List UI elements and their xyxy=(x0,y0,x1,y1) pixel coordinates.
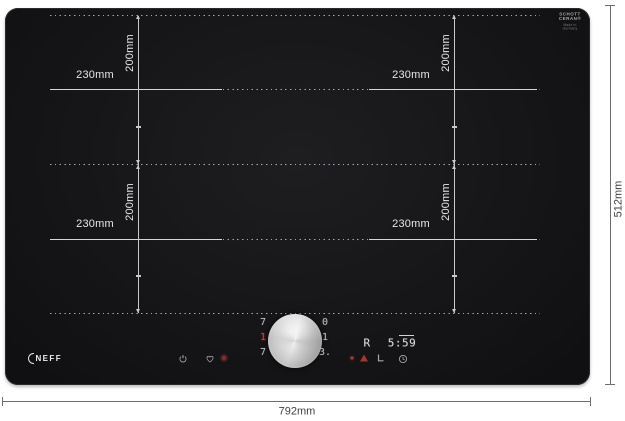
dimension-arrow xyxy=(452,160,456,164)
zone-level-display: 1 xyxy=(322,333,328,343)
heat-indicator-display: R xyxy=(363,338,370,349)
dimension-arrow xyxy=(136,309,140,313)
zone-level-display: 7 xyxy=(260,318,266,328)
red-indicator-dot xyxy=(220,354,229,363)
dimension-end-tick xyxy=(605,5,615,6)
warning-triangle-icon xyxy=(360,355,368,362)
dimension-tick xyxy=(136,275,141,277)
dimension-tick xyxy=(452,275,457,277)
zone-width-dimension-line xyxy=(369,239,537,240)
red-indicator-dot xyxy=(351,357,354,360)
dimension-tick xyxy=(136,126,141,128)
zone-level-display: 0 xyxy=(322,318,328,328)
dimension-end-tick xyxy=(590,397,591,406)
dimension-arrow xyxy=(136,15,140,19)
power-icon xyxy=(179,355,188,364)
zone-height-label: 200mm xyxy=(124,172,136,232)
zone-marker-row xyxy=(50,15,540,16)
brand-logo: NEFF xyxy=(28,353,62,364)
zone-level-display-active: 1 xyxy=(260,333,266,343)
dimension-end-tick xyxy=(2,397,3,406)
heart-icon xyxy=(206,355,215,363)
overall-height-dimension-line xyxy=(610,5,611,385)
clock-icon xyxy=(399,355,408,364)
zone-width-label: 230mm xyxy=(65,218,125,230)
dimension-end-tick xyxy=(605,384,615,385)
zone-height-label: 200mm xyxy=(440,23,452,83)
zone-width-label: 230mm xyxy=(381,218,441,230)
twistpad-knob xyxy=(268,314,322,368)
timer-display: 5:59 xyxy=(388,338,417,349)
zone-width-dimension-line xyxy=(369,89,537,90)
hob-surface: 230mm 230mm 230mm 230mm 200mm 200mm 200m… xyxy=(5,8,590,385)
brand-logo-text: NEFF xyxy=(36,354,63,363)
zone-width-dimension-line xyxy=(50,239,222,240)
glass-brand-line2: CERAN® xyxy=(550,17,590,22)
dimension-arrow xyxy=(136,165,140,169)
product-dimension-diagram: 230mm 230mm 230mm 230mm 200mm 200mm 200m… xyxy=(0,0,625,421)
zone-width-label: 230mm xyxy=(381,69,441,81)
zone-height-label: 200mm xyxy=(440,172,452,232)
zone-width-dimension-line xyxy=(50,89,222,90)
overall-height-label: 512mm xyxy=(613,169,625,229)
glass-brand-print: SCHOTT CERAN® Made in Germany xyxy=(550,12,590,46)
knob-sheen xyxy=(268,314,322,368)
overall-width-label: 792mm xyxy=(267,406,327,419)
zone-marker-row xyxy=(50,164,540,165)
overall-width-dimension-line xyxy=(2,401,591,402)
glass-small-print-line2: Germany xyxy=(550,27,590,31)
zone-height-label: 200mm xyxy=(124,23,136,83)
dimension-tick xyxy=(452,126,457,128)
zone-width-label: 230mm xyxy=(65,69,125,81)
key-lock-icon xyxy=(376,354,384,362)
zone-level-display: 3. xyxy=(319,348,331,358)
dimension-arrow xyxy=(136,160,140,164)
timer-overline xyxy=(399,335,414,336)
dimension-arrow xyxy=(452,15,456,19)
dimension-arrow xyxy=(452,309,456,313)
dimension-arrow xyxy=(452,165,456,169)
neff-bracket-icon xyxy=(28,353,34,364)
zone-level-display: 7 xyxy=(260,348,266,358)
